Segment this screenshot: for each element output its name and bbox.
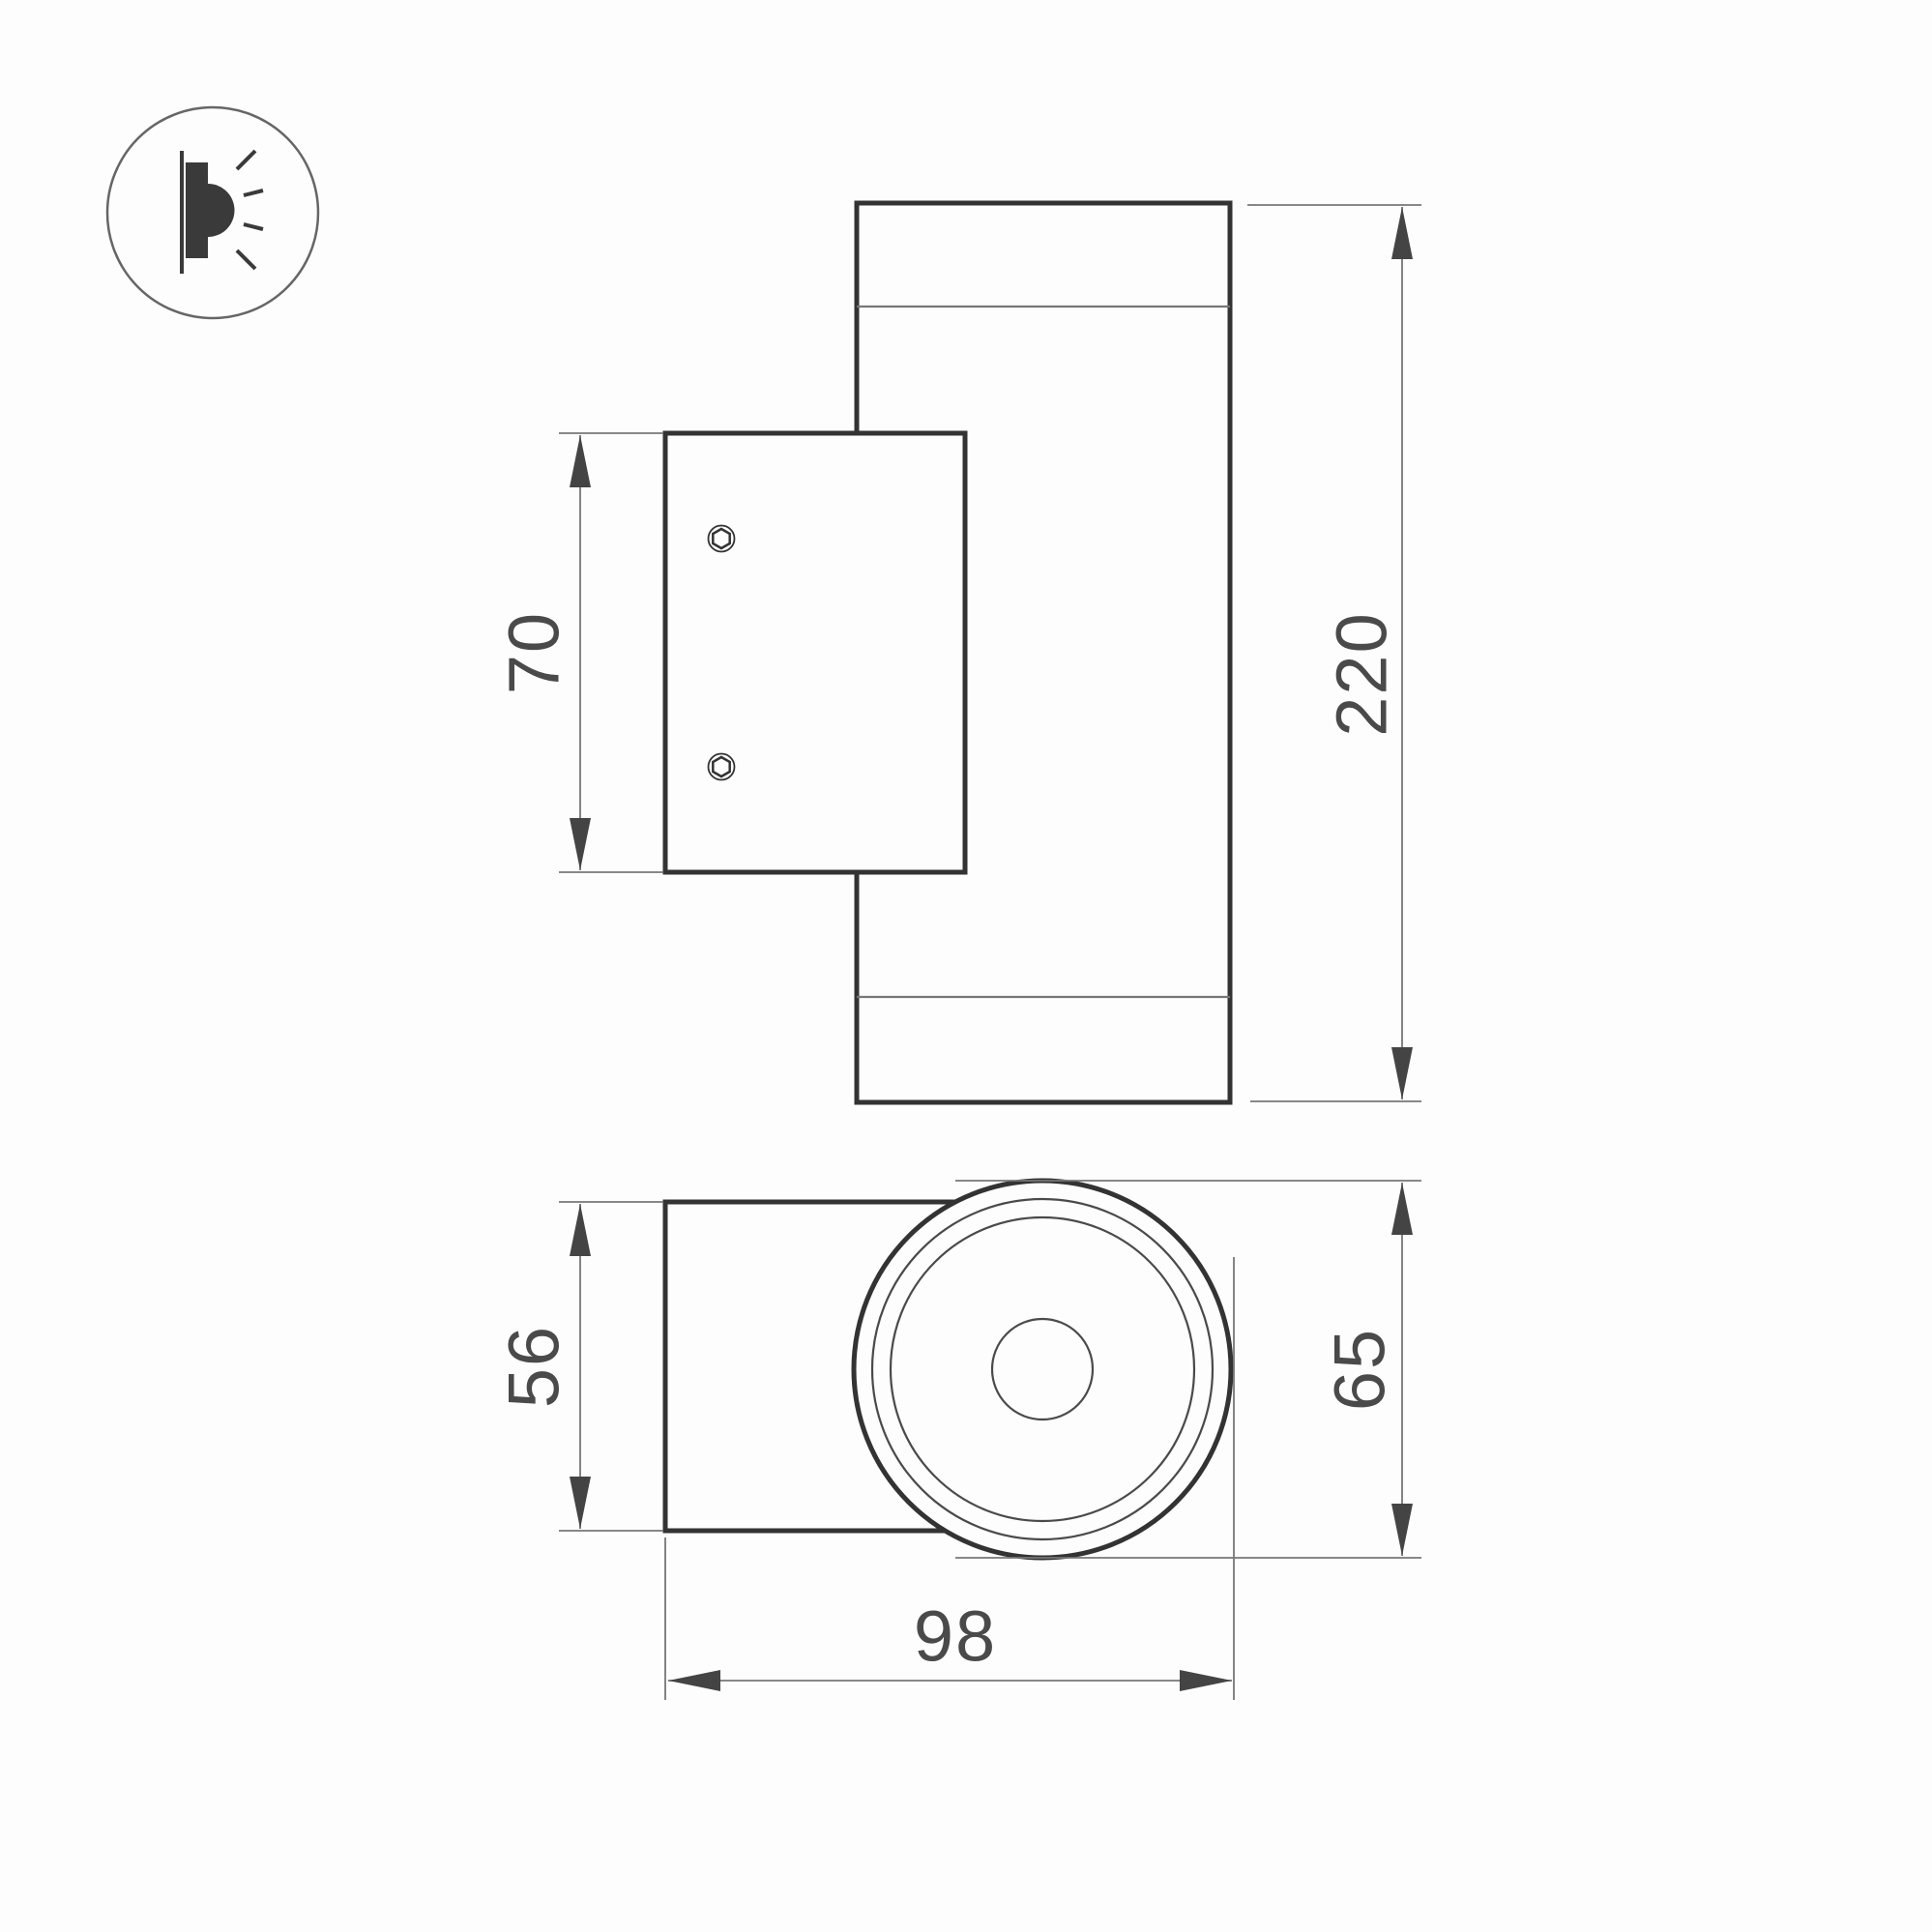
icon-light-rays — [237, 151, 263, 269]
icon-lamp-body — [186, 162, 208, 258]
arrow-down-icon — [1391, 1504, 1413, 1556]
dimension-bracket-height: 56 — [494, 1202, 664, 1531]
arrow-up-icon — [570, 435, 591, 487]
dimension-label-bracket-height: 56 — [494, 1325, 574, 1408]
dimension-label-body-diameter: 65 — [1320, 1328, 1400, 1411]
arrow-up-icon — [570, 1204, 591, 1256]
dimension-label-total-depth: 98 — [914, 1596, 997, 1677]
side-elevation-view: 70 220 — [494, 203, 1422, 1102]
arrow-down-icon — [570, 1477, 591, 1529]
plan-view: 56 65 98 — [494, 1181, 1422, 1700]
dimension-body-height: 220 — [1247, 205, 1421, 1101]
arrow-down-icon — [570, 818, 591, 870]
wall-light-icon — [107, 107, 318, 318]
mounting-plate-outline — [665, 433, 965, 872]
icon-light-dome — [208, 184, 235, 237]
arrow-right-icon — [1180, 1670, 1232, 1691]
body-outer-circle — [854, 1181, 1231, 1558]
dimension-label-plate-height: 70 — [494, 611, 574, 694]
arrow-up-icon — [1391, 207, 1413, 259]
arrow-left-icon — [668, 1670, 720, 1691]
dimension-label-body-height: 220 — [1322, 611, 1402, 736]
dimension-plate-height: 70 — [494, 433, 664, 872]
arrow-down-icon — [1391, 1047, 1413, 1099]
arrow-up-icon — [1391, 1183, 1413, 1235]
technical-dimension-drawing: 70 220 56 — [0, 0, 1932, 1932]
